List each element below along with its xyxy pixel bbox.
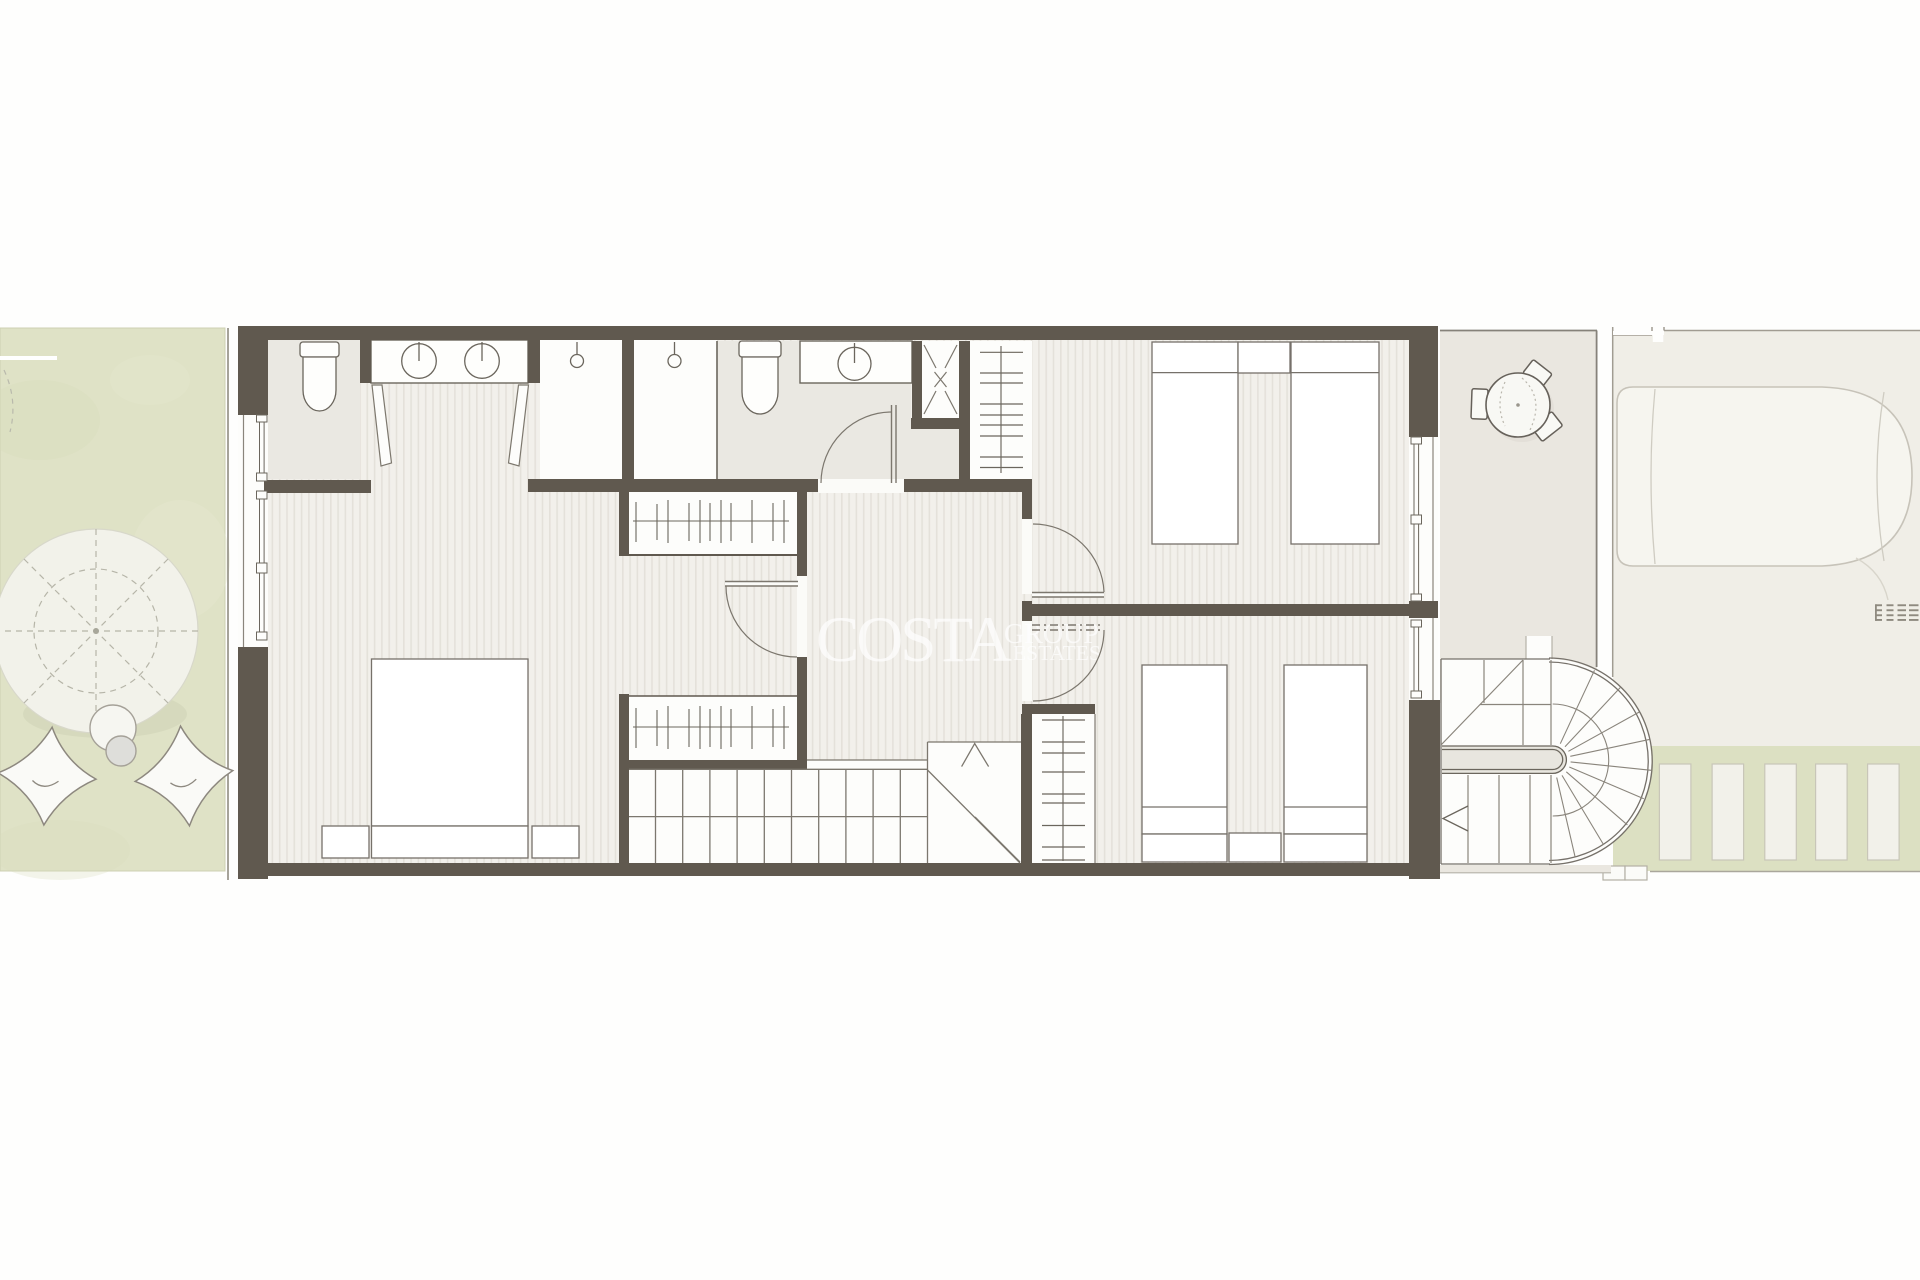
svg-text:COSTA: COSTA bbox=[816, 604, 1012, 676]
svg-text:ESTATES: ESTATES bbox=[1013, 641, 1101, 665]
